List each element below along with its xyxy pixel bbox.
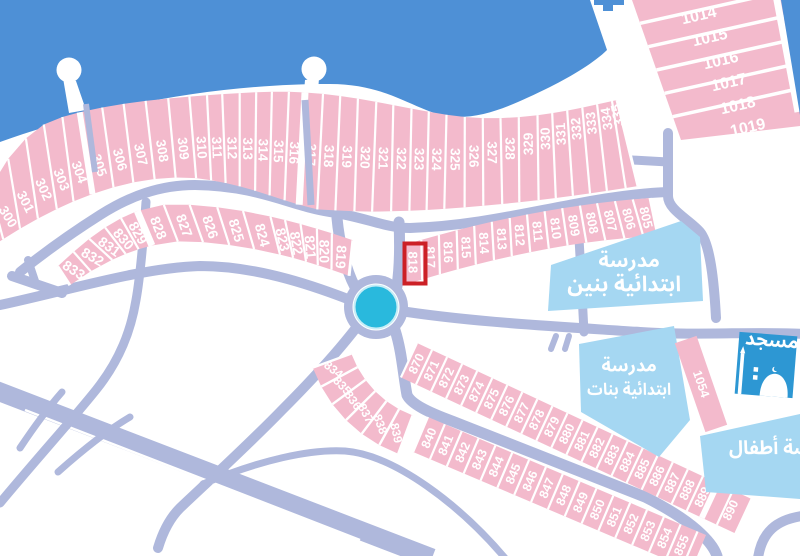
svg-text:311: 311 <box>209 136 225 159</box>
svg-text:333: 333 <box>583 111 600 135</box>
svg-text:819: 819 <box>333 245 350 269</box>
svg-text:324: 324 <box>429 148 445 171</box>
svg-text:318: 318 <box>321 145 337 169</box>
svg-text:315: 315 <box>271 140 287 163</box>
svg-text:320: 320 <box>357 146 373 169</box>
svg-text:329: 329 <box>521 133 536 156</box>
svg-text:309: 309 <box>174 136 192 160</box>
svg-text:327: 327 <box>484 141 499 164</box>
svg-text:323: 323 <box>411 148 426 171</box>
svg-text:325: 325 <box>447 148 462 171</box>
svg-text:313: 313 <box>240 137 255 160</box>
svg-text:314: 314 <box>255 139 270 162</box>
svg-text:813: 813 <box>494 228 510 251</box>
svg-text:810: 810 <box>547 217 565 240</box>
svg-text:816: 816 <box>441 241 457 263</box>
svg-text:322: 322 <box>394 147 409 170</box>
svg-text:326: 326 <box>466 145 481 168</box>
svg-text:812: 812 <box>511 224 527 247</box>
svg-text:331: 331 <box>553 122 569 146</box>
svg-text:319: 319 <box>339 145 355 168</box>
svg-text:316: 316 <box>286 141 302 165</box>
svg-text:330: 330 <box>538 127 554 150</box>
svg-text:321: 321 <box>375 147 391 170</box>
svg-text:818: 818 <box>405 251 420 273</box>
svg-text:332: 332 <box>568 117 585 141</box>
svg-text:312: 312 <box>224 136 239 159</box>
svg-text:811: 811 <box>529 220 546 242</box>
svg-text:310: 310 <box>193 136 209 159</box>
svg-text:820: 820 <box>316 240 332 264</box>
svg-text:815: 815 <box>458 236 474 258</box>
svg-text:328: 328 <box>502 137 517 160</box>
svg-text:814: 814 <box>476 232 492 255</box>
